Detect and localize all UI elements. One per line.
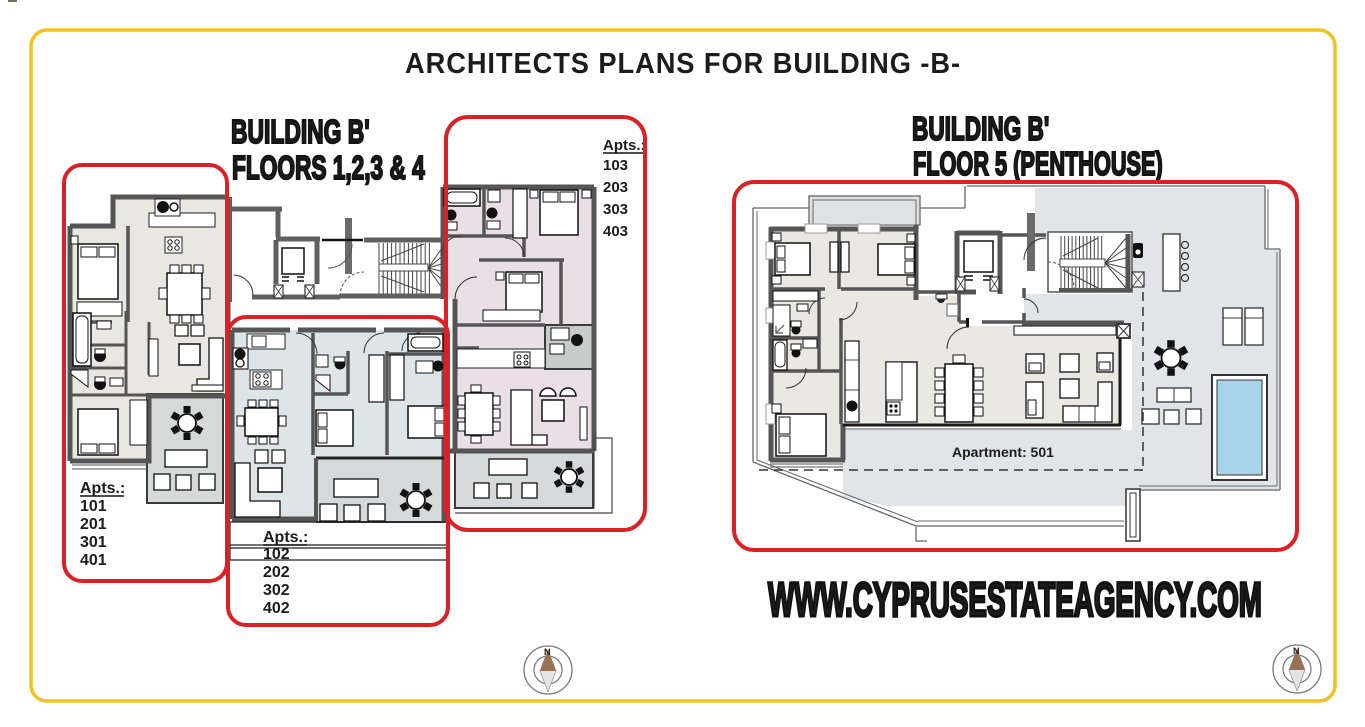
svg-text:Apts.:: Apts.:: [80, 480, 125, 497]
svg-text:WWW.CYPRUSESTATEAGENCY.COM: WWW.CYPRUSESTATEAGENCY.COM: [768, 572, 1262, 626]
svg-text:N: N: [544, 647, 551, 657]
svg-text:N: N: [1293, 646, 1300, 656]
svg-text:103: 103: [603, 157, 628, 174]
svg-text:301: 301: [80, 534, 107, 551]
svg-text:402: 402: [263, 600, 290, 617]
svg-text:Apartment: 501: Apartment: 501: [952, 444, 1054, 460]
svg-text:Apts.:: Apts.:: [263, 529, 308, 546]
svg-text:BUILDING B': BUILDING B': [231, 115, 370, 151]
svg-text:102: 102: [263, 546, 290, 563]
svg-text:401: 401: [80, 552, 107, 569]
svg-text:ARCHITECTS PLANS FOR BUILDING: ARCHITECTS PLANS FOR BUILDING -B-: [405, 48, 961, 80]
svg-text:Apts.:: Apts.:: [603, 137, 646, 154]
svg-text:302: 302: [263, 582, 290, 599]
svg-text:FLOOR 5 (PENTHOUSE): FLOOR 5 (PENTHOUSE): [913, 147, 1163, 183]
svg-text:203: 203: [603, 179, 628, 196]
svg-text:101: 101: [80, 498, 107, 515]
svg-text:303: 303: [603, 201, 628, 218]
svg-text:FLOORS 1,2,3 & 4: FLOORS 1,2,3 & 4: [232, 151, 425, 187]
svg-text:BUILDING B': BUILDING B': [912, 112, 1049, 148]
svg-text:201: 201: [80, 516, 107, 533]
svg-text:202: 202: [263, 564, 290, 581]
svg-text:403: 403: [603, 223, 628, 240]
